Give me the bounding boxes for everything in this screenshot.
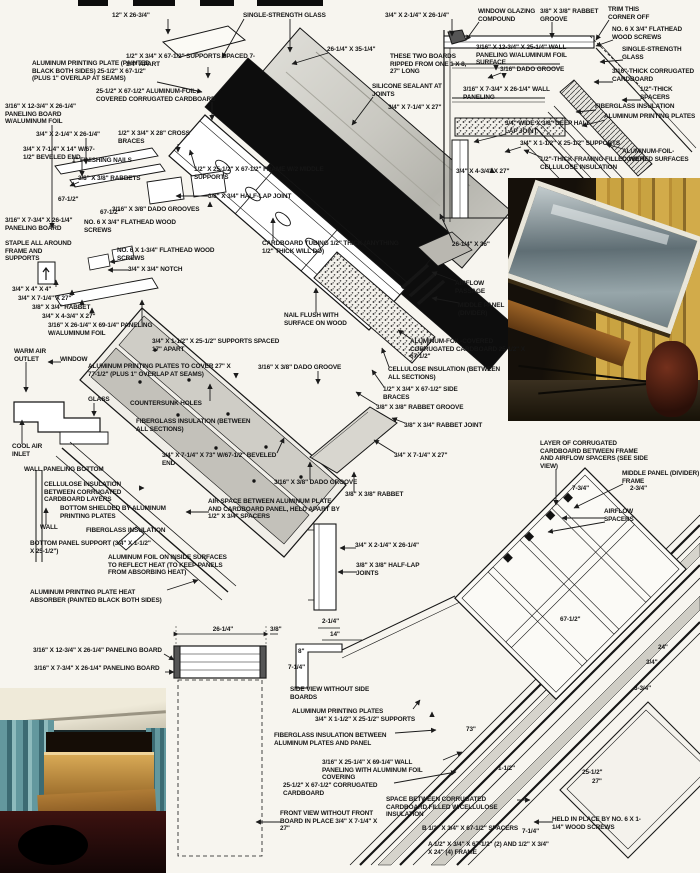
leader-arrow: [440, 214, 453, 242]
leader-arrow: [574, 484, 623, 508]
leader-arrow: [372, 370, 384, 387]
leader-arrow: [474, 134, 506, 142]
leader-arrow: [395, 730, 436, 733]
leader-arrow: [466, 22, 479, 40]
leader-arrow: [413, 700, 420, 709]
leader-lines: [0, 0, 700, 873]
leader-arrow: [110, 261, 118, 262]
leader-arrow: [398, 330, 411, 339]
magazine-plan-page: 12" X 26-3/4"SINGLE-STRENGTH GLASS26-1/4…: [0, 0, 700, 873]
leader-arrow: [488, 73, 501, 78]
leader-arrow: [600, 60, 623, 62]
leader-arrow: [505, 147, 521, 152]
leader-arrow: [352, 97, 373, 125]
leader-arrow: [392, 418, 405, 423]
leader-arrow: [432, 272, 456, 281]
leader-arrow: [292, 53, 328, 64]
leader-arrow: [524, 150, 541, 157]
leader-arrow: [356, 392, 377, 405]
leader-arrow: [606, 144, 623, 149]
leader-arrow: [374, 440, 395, 453]
leader-arrow: [164, 654, 174, 660]
leader-arrow: [222, 19, 244, 58]
leader-arrow: [157, 82, 202, 92]
leader-arrow: [394, 772, 456, 783]
leader-arrow: [70, 182, 79, 186]
leader-arrow: [548, 522, 605, 532]
leader-arrow: [432, 298, 459, 303]
leader-arrow: [596, 20, 609, 40]
leader-arrow: [167, 580, 198, 590]
leader-arrow: [582, 120, 605, 126]
leader-arrow: [190, 150, 195, 167]
leader-arrow: [382, 348, 389, 367]
leader-arrow: [277, 438, 284, 453]
leader-arrow: [576, 110, 596, 112]
leader-arrow: [443, 752, 462, 760]
leader-arrow: [596, 40, 613, 46]
